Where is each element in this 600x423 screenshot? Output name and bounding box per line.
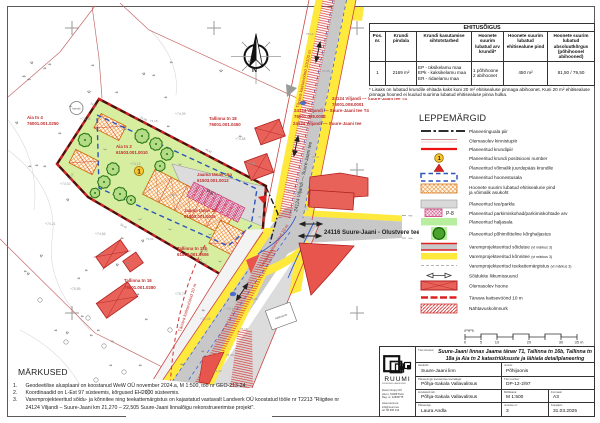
svg-text:5: 5 xyxy=(480,340,483,345)
svg-text:30: 30 xyxy=(559,340,564,345)
svg-text:74,22: 74,22 xyxy=(286,189,294,193)
svg-text:74,95: 74,95 xyxy=(322,69,330,73)
svg-text:Tallinna tn 16: Tallinna tn 16 xyxy=(124,278,152,283)
svg-text:20: 20 xyxy=(527,340,532,345)
svg-text:61503.001.0010: 61503.001.0010 xyxy=(116,150,148,155)
svg-text:58,45: 58,45 xyxy=(119,222,127,229)
svg-text:76001.001.0450: 76001.001.0450 xyxy=(209,122,241,127)
svg-text:Planeeringuala piir: Planeeringuala piir xyxy=(469,129,508,134)
svg-text:Tänava kaitsevöönd 10 m: Tänava kaitsevöönd 10 m xyxy=(469,296,523,301)
svg-text:Planeeritud põhimõtteline kõrg: Planeeritud põhimõtteline kõrghaljastus xyxy=(469,232,551,237)
svg-text:10: 10 xyxy=(495,340,500,345)
svg-text:Jaama tänav 16: Jaama tänav 16 xyxy=(184,208,217,213)
svg-text:61503.001.0016: 61503.001.0016 xyxy=(184,214,216,219)
svg-text:+74,21: +74,21 xyxy=(45,222,56,226)
svg-text:Sõidukite liikumissuund: Sõidukite liikumissuund xyxy=(469,274,518,279)
svg-text:74,60: 74,60 xyxy=(300,125,308,129)
svg-text:Aia tn 4: Aia tn 4 xyxy=(27,115,43,120)
svg-text:Varemprojekteeritud kõnnitee (: Varemprojekteeritud kõnnitee (vt märkus … xyxy=(469,254,552,259)
svg-text:+75,45: +75,45 xyxy=(200,317,211,321)
svg-text:Planeeritud parkimiskohad/park: Planeeritud parkimiskohad/parkimiskohtad… xyxy=(469,211,568,216)
svg-text:Planeeritud haljasala: Planeeritud haljasala xyxy=(469,220,513,225)
svg-text:Nähtavuskolmnurk: Nähtavuskolmnurk xyxy=(469,306,508,311)
svg-text:76001.001.0250: 76001.001.0250 xyxy=(27,121,59,126)
svg-text:76001.008.0002: 76001.008.0002 xyxy=(294,114,326,119)
svg-text:Tallinna tn 18: Tallinna tn 18 xyxy=(209,116,237,121)
svg-text:Planeeritud hoonestusala: Planeeritud hoonestusala xyxy=(469,175,522,180)
svg-text:0: 0 xyxy=(464,340,467,345)
svg-text:24124 Viljandi — Suure-Jaani t: 24124 Viljandi — Suure-Jaani tee T4 xyxy=(294,108,369,113)
svg-text:N: N xyxy=(252,67,257,74)
svg-text:Planeeritud tee/parkla: Planeeritud tee/parkla xyxy=(469,202,515,207)
svg-text:75,30: 75,30 xyxy=(226,353,234,357)
svg-text:45,81: 45,81 xyxy=(205,147,213,154)
svg-text:+74,88: +74,88 xyxy=(235,137,246,141)
svg-text:+74,15: +74,15 xyxy=(130,162,141,166)
svg-text:Jaama tänav 16a: Jaama tänav 16a xyxy=(197,172,232,177)
svg-text:Planeeritud krundi positsiooni: Planeeritud krundi positsiooni number xyxy=(469,156,548,161)
svg-text:75,18: 75,18 xyxy=(240,327,248,331)
svg-text:74,15: 74,15 xyxy=(150,119,158,123)
svg-text:+74,02: +74,02 xyxy=(60,182,71,186)
svg-text:74,41: 74,41 xyxy=(312,155,320,159)
svg-text:kaevab: kaevab xyxy=(72,106,81,110)
svg-text:P-8: P-8 xyxy=(446,211,454,217)
svg-text:+74,66: +74,66 xyxy=(95,232,106,236)
svg-text:61503.001.0012: 61503.001.0012 xyxy=(197,178,229,183)
svg-text:24116 Suure-Jaani - Olustvere: 24116 Suure-Jaani - Olustvere tee xyxy=(324,230,420,236)
svg-text:75,05: 75,05 xyxy=(250,297,258,301)
svg-text:74,08: 74,08 xyxy=(190,147,198,151)
svg-text:74,34: 74,34 xyxy=(258,215,266,219)
svg-text:74,26: 74,26 xyxy=(170,193,178,197)
svg-text:Planeeritud krundipiir: Planeeritud krundipiir xyxy=(469,147,513,152)
svg-text:+74,48: +74,48 xyxy=(80,117,91,121)
svg-text:+75,85: +75,85 xyxy=(70,287,81,291)
svg-text:+73,88: +73,88 xyxy=(245,162,256,166)
svg-text:Varemprojekteeritud teekattemä: Varemprojekteeritud teekattemärgistus (v… xyxy=(469,264,571,269)
svg-text:1: 1 xyxy=(438,156,441,162)
svg-text:Varemprojekteeritud sõidutee (: Varemprojekteeritud sõidutee (vt märkus … xyxy=(469,245,552,250)
svg-text:74,70: 74,70 xyxy=(200,249,208,253)
svg-text:75,10: 75,10 xyxy=(306,32,314,36)
svg-text:ja võimalik asukoht: ja võimalik asukoht xyxy=(468,190,509,195)
svg-text:Olemasolev hoone: Olemasolev hoone xyxy=(469,284,508,289)
svg-text:Planeeritud võimalik juurdepää: Planeeritud võimalik juurdepääs krundile xyxy=(469,166,554,171)
svg-text:76001.008.0001: 76001.008.0001 xyxy=(332,102,364,107)
svg-text:76001.001.0280: 76001.001.0280 xyxy=(124,285,156,290)
svg-text:+75,10: +75,10 xyxy=(225,307,236,311)
svg-text:Aia tn 2: Aia tn 2 xyxy=(116,144,132,149)
svg-text:+75,78: +75,78 xyxy=(175,292,186,296)
svg-text:35 m: 35 m xyxy=(575,340,585,345)
svg-text:74,61: 74,61 xyxy=(146,237,154,241)
svg-text:Olemasolev kinnistupiir: Olemasolev kinnistupiir xyxy=(469,139,518,144)
svg-text:+74,09: +74,09 xyxy=(175,112,186,116)
